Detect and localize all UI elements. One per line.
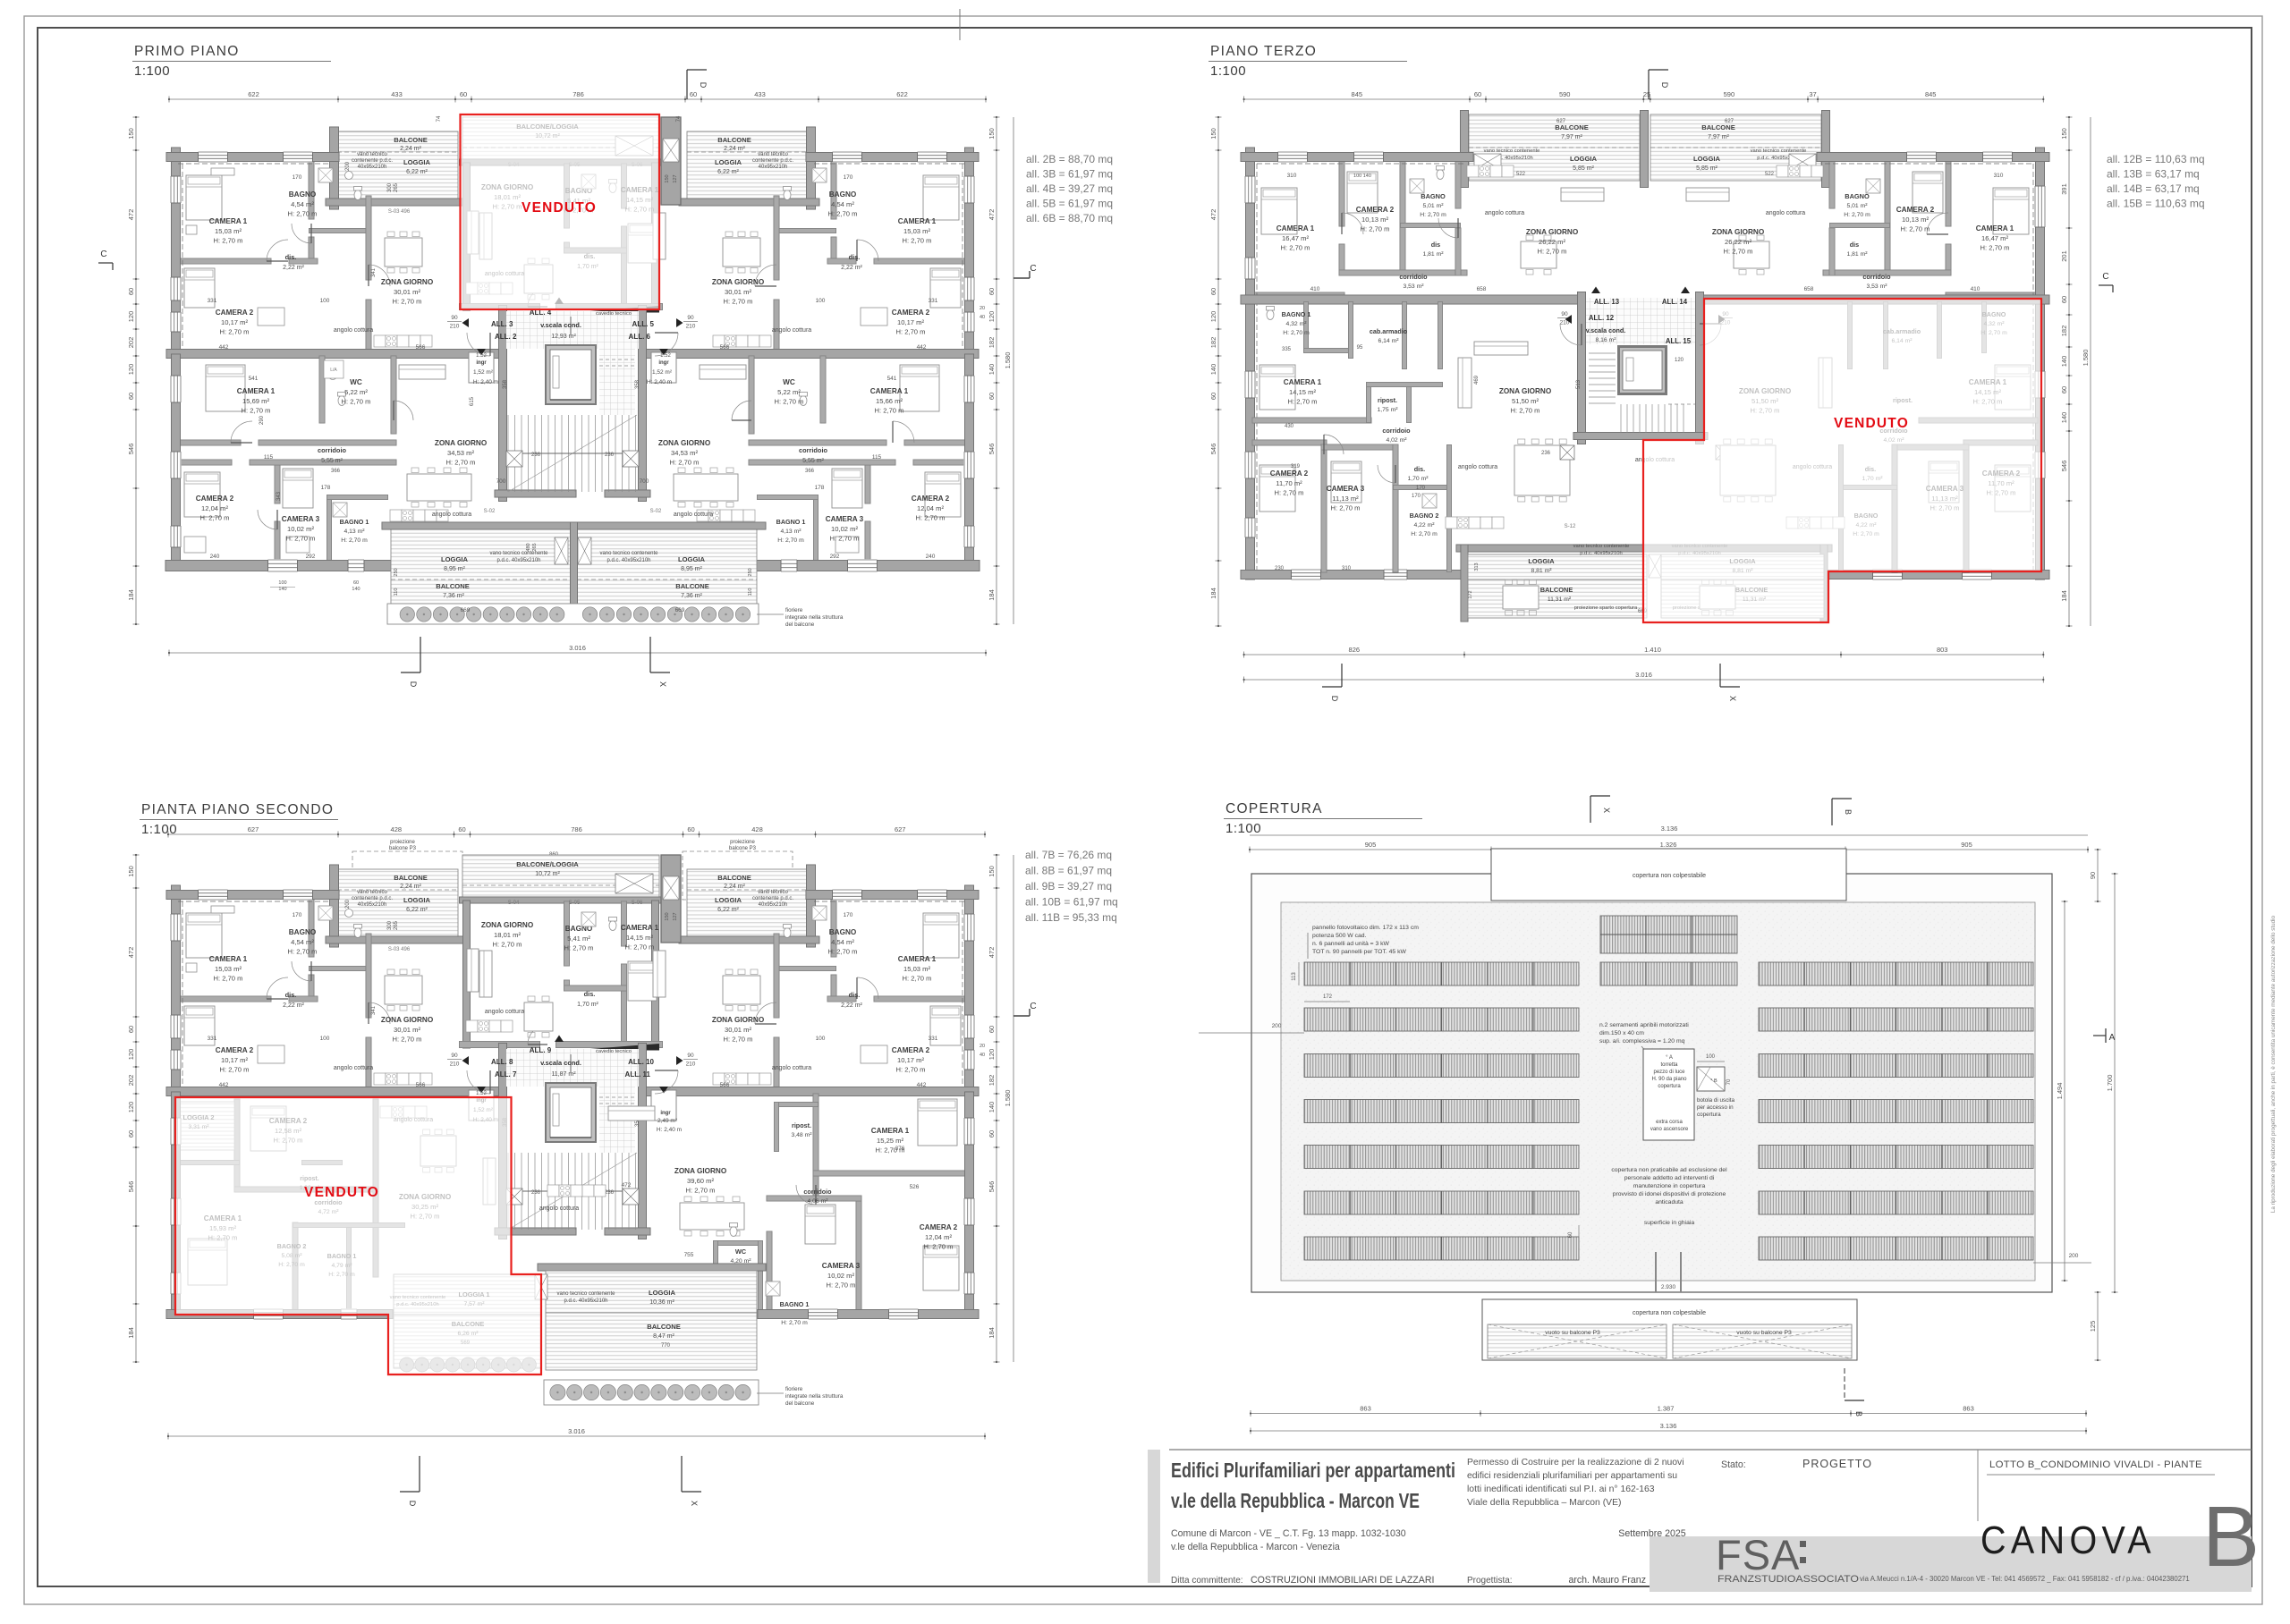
svg-text:100: 100 <box>278 580 286 586</box>
svg-text:250: 250 <box>748 568 753 576</box>
svg-text:CAMERA 2: CAMERA 2 <box>1896 206 1935 214</box>
svg-text:40x95x210h: 40x95x210h <box>358 902 387 908</box>
svg-text:202: 202 <box>127 337 135 349</box>
svg-text:angolo cottura: angolo cottura <box>674 512 713 518</box>
svg-text:H: 2,70 m: H: 2,70 m <box>1844 212 1870 218</box>
svg-text:170: 170 <box>1412 494 1421 499</box>
svg-text:12,04 m²: 12,04 m² <box>917 504 944 512</box>
svg-text:D: D <box>699 82 708 89</box>
svg-text:170: 170 <box>1416 486 1426 491</box>
svg-text:113: 113 <box>1292 972 1297 981</box>
svg-text:H: 2,70 m: H: 2,70 m <box>924 1243 954 1251</box>
svg-text:CAMERA 1: CAMERA 1 <box>870 387 909 395</box>
svg-text:LOGGIA: LOGGIA <box>1570 155 1597 163</box>
svg-text:ingr: ingr <box>658 360 669 366</box>
svg-text:60: 60 <box>127 393 135 400</box>
svg-text:all. 5B = 61,97 mq: all. 5B = 61,97 mq <box>1026 198 1113 210</box>
svg-text:fioriere: fioriere <box>785 607 803 613</box>
svg-text:angolo cottura: angolo cottura <box>772 327 811 334</box>
svg-text:CAMERA 2: CAMERA 2 <box>912 495 950 503</box>
svg-text:CAMERA 1: CAMERA 1 <box>871 1127 910 1135</box>
svg-text:14,15 m²: 14,15 m² <box>626 934 653 942</box>
svg-text:ingr: ingr <box>476 360 487 366</box>
svg-text:622: 622 <box>896 90 908 98</box>
svg-text:10,17 m²: 10,17 m² <box>221 318 248 326</box>
svg-text:150: 150 <box>127 866 135 877</box>
svg-text:4,54 m²: 4,54 m² <box>291 200 314 208</box>
svg-text:51,50 m²: 51,50 m² <box>1512 397 1539 405</box>
svg-text:700: 700 <box>496 478 506 485</box>
svg-text:1:100: 1:100 <box>134 63 170 79</box>
svg-text:S-05: S-05 <box>569 901 581 906</box>
svg-text:all. 10B = 61,97 mq: all. 10B = 61,97 mq <box>1025 896 1118 909</box>
svg-text:240: 240 <box>926 554 936 560</box>
svg-text:60: 60 <box>460 90 467 98</box>
svg-text:CAMERA 2: CAMERA 2 <box>196 495 234 503</box>
svg-text:S-06: S-06 <box>632 901 643 906</box>
svg-text:LOGGIA: LOGGIA <box>649 1289 675 1297</box>
svg-text:472: 472 <box>622 1182 632 1188</box>
svg-text:X: X <box>1602 808 1611 813</box>
svg-text:torretta: torretta <box>1660 1062 1678 1068</box>
svg-text:10,02 m²: 10,02 m² <box>831 525 858 533</box>
svg-text:vano tecnico contenente: vano tecnico contenente <box>1484 148 1540 154</box>
svg-text:vano tecnico contenente: vano tecnico contenente <box>599 551 658 556</box>
svg-text:ZONA GIORNO: ZONA GIORNO <box>658 439 711 447</box>
svg-text:12,04 m²: 12,04 m² <box>925 1233 952 1241</box>
svg-text:90: 90 <box>687 315 694 321</box>
svg-text:30,01 m²: 30,01 m² <box>725 1026 751 1034</box>
svg-text:del balcone: del balcone <box>785 1400 815 1407</box>
svg-text:vano tecnico: vano tecnico <box>357 890 387 895</box>
svg-text:H: 2,70 m: H: 2,70 m <box>288 210 318 218</box>
svg-text:40: 40 <box>980 1053 985 1058</box>
svg-text:per accesso in: per accesso in <box>1697 1104 1734 1111</box>
svg-text:182: 182 <box>988 337 996 349</box>
svg-text:39,60 m²: 39,60 m² <box>687 1177 714 1185</box>
svg-text:H: 2,70 m: H: 2,70 m <box>1281 244 1310 252</box>
svg-text:127: 127 <box>673 912 678 920</box>
svg-text:60: 60 <box>458 825 465 833</box>
svg-text:H: 2,70 m: H: 2,70 m <box>828 210 858 218</box>
svg-text:34,53 m²: 34,53 m² <box>671 449 698 457</box>
svg-text:100: 100 <box>816 1036 826 1042</box>
svg-text:826: 826 <box>1349 646 1361 654</box>
svg-text:CAMERA 1: CAMERA 1 <box>1276 224 1315 233</box>
svg-text:8,47 m²: 8,47 m² <box>653 1333 674 1340</box>
svg-text:11,13 m²: 11,13 m² <box>1332 495 1359 503</box>
svg-text:CAMERA 3: CAMERA 3 <box>1327 485 1365 493</box>
svg-text:150: 150 <box>665 174 670 182</box>
svg-text:WC: WC <box>735 1248 747 1256</box>
svg-text:ALL. 3: ALL. 3 <box>491 320 513 328</box>
svg-text:B: B <box>2202 1489 2260 1585</box>
svg-text:all. 12B = 110,63 mq: all. 12B = 110,63 mq <box>2107 153 2205 165</box>
svg-text:2,22 m²: 2,22 m² <box>283 265 304 271</box>
svg-text:proiezione: proiezione <box>390 840 415 845</box>
svg-text:2.930: 2.930 <box>1661 1284 1676 1290</box>
svg-text:522: 522 <box>1765 172 1775 177</box>
svg-text:20: 20 <box>980 1044 985 1049</box>
svg-text:331: 331 <box>208 1036 217 1042</box>
svg-text:115: 115 <box>264 454 274 461</box>
svg-text:8,81 m²: 8,81 m² <box>1531 568 1552 574</box>
svg-text:S-02: S-02 <box>650 509 662 514</box>
svg-text:all. 7B = 76,26 mq: all. 7B = 76,26 mq <box>1025 849 1112 861</box>
svg-text:8,95 m²: 8,95 m² <box>681 566 702 572</box>
svg-text:26,22 m²: 26,22 m² <box>1725 238 1751 246</box>
svg-text:6,22 m²: 6,22 m² <box>406 907 428 913</box>
svg-text:15,03 m²: 15,03 m² <box>903 965 930 973</box>
svg-text:5,22 m²: 5,22 m² <box>344 388 368 396</box>
svg-text:100: 100 <box>320 1036 330 1042</box>
svg-text:1,70 m²: 1,70 m² <box>1407 476 1429 482</box>
svg-text:10,13 m²: 10,13 m² <box>1361 216 1388 224</box>
svg-text:200: 200 <box>2069 1253 2079 1259</box>
svg-text:angolo cottura: angolo cottura <box>1766 210 1805 216</box>
svg-text:BALCONE: BALCONE <box>436 582 470 590</box>
svg-text:319: 319 <box>1291 464 1301 469</box>
svg-text:3.016: 3.016 <box>568 1427 585 1435</box>
svg-text:H: 2,70 m: H: 2,70 m <box>724 1036 753 1044</box>
svg-text:S-04: S-04 <box>508 901 520 906</box>
svg-text:ZONA GIORNO: ZONA GIORNO <box>1499 387 1552 395</box>
svg-text:90: 90 <box>687 1053 694 1059</box>
svg-text:v.le della Repubblica - Marcon: v.le della Repubblica - Marcon VE <box>1171 1489 1420 1512</box>
svg-text:1.387: 1.387 <box>1658 1405 1675 1413</box>
svg-text:BAGNO: BAGNO <box>289 928 317 936</box>
svg-text:60: 60 <box>988 288 996 295</box>
svg-text:H: 2,70 m: H: 2,70 m <box>1724 248 1753 256</box>
svg-text:H: 2,70 m: H: 2,70 m <box>1411 531 1438 537</box>
svg-text:627: 627 <box>895 825 906 833</box>
svg-text:5,85 m²: 5,85 m² <box>1573 165 1594 172</box>
svg-text:vano tecnico: vano tecnico <box>357 152 387 157</box>
svg-text:H: 2,70 m: H: 2,70 m <box>828 948 858 956</box>
svg-text:11,31 m²: 11,31 m² <box>1548 596 1572 603</box>
svg-text:LOGGIA: LOGGIA <box>1693 155 1720 163</box>
svg-text:236: 236 <box>531 453 541 458</box>
svg-text:LOGGIA: LOGGIA <box>403 896 430 904</box>
svg-text:331: 331 <box>929 298 938 304</box>
svg-text:60: 60 <box>988 1026 996 1033</box>
svg-text:FRANZSTUDIOASSOCIATO: FRANZSTUDIOASSOCIATO <box>1717 1574 1859 1585</box>
svg-text:BALCONE: BALCONE <box>394 136 428 144</box>
svg-text:H: 2,70 m: H: 2,70 m <box>446 459 476 467</box>
svg-text:v.scala cond.: v.scala cond. <box>540 321 581 329</box>
svg-text:1:100: 1:100 <box>1226 821 1261 836</box>
svg-text:angolo cottura: angolo cottura <box>539 1205 579 1212</box>
svg-text:CAMERA 1: CAMERA 1 <box>209 217 248 225</box>
svg-text:210: 210 <box>450 1062 460 1068</box>
svg-text:10,36 m²: 10,36 m² <box>649 1299 674 1306</box>
svg-text:all. 14B = 63,17 mq: all. 14B = 63,17 mq <box>2107 182 2200 195</box>
svg-text:341: 341 <box>371 267 377 277</box>
svg-text:15,25 m²: 15,25 m² <box>877 1137 903 1145</box>
svg-text:ALL. 6: ALL. 6 <box>629 333 651 341</box>
svg-text:extra corsa: extra corsa <box>1656 1120 1683 1125</box>
svg-text:331: 331 <box>208 298 217 304</box>
svg-text:ALL. 11: ALL. 11 <box>625 1070 651 1078</box>
svg-text:863: 863 <box>1360 1405 1371 1413</box>
svg-text:100: 100 <box>320 298 330 304</box>
svg-text:TOT n. 90 pannelli per TOT. 45: TOT n. 90 pannelli per TOT. 45 kW <box>1312 949 1406 955</box>
svg-text:dis.: dis. <box>849 253 861 261</box>
svg-text:H: 2,70 m: H: 2,70 m <box>242 407 271 415</box>
svg-text:34,53 m²: 34,53 m² <box>447 449 474 457</box>
svg-text:CAMERA 1: CAMERA 1 <box>209 955 248 963</box>
svg-text:150: 150 <box>988 866 996 877</box>
svg-text:140: 140 <box>2060 412 2068 424</box>
svg-text:37: 37 <box>1809 90 1816 98</box>
svg-text:250: 250 <box>394 568 399 576</box>
svg-text:627: 627 <box>248 825 259 833</box>
svg-text:74: 74 <box>676 115 682 122</box>
svg-text:18,01 m²: 18,01 m² <box>494 931 521 939</box>
svg-text:410: 410 <box>1971 286 1980 292</box>
svg-text:60: 60 <box>1209 393 1217 400</box>
svg-text:25: 25 <box>1643 90 1650 98</box>
svg-text:ingr: ingr <box>660 1111 671 1116</box>
svg-text:balcone P3: balcone P3 <box>729 846 757 851</box>
svg-text:CAMERA 2: CAMERA 2 <box>892 309 930 317</box>
svg-text:H: 2,70 m: H: 2,70 m <box>875 407 904 415</box>
svg-text:ALL. 12: ALL. 12 <box>1589 314 1615 322</box>
svg-text:90: 90 <box>451 1053 458 1059</box>
svg-text:lotti inedificati identificati: lotti inedificati identificati sul P.I. … <box>1467 1484 1655 1494</box>
svg-text:6,22 m²: 6,22 m² <box>406 169 428 175</box>
svg-text:C: C <box>100 250 106 259</box>
svg-text:140: 140 <box>352 587 360 592</box>
svg-text:265: 265 <box>394 920 399 930</box>
svg-text:7,36 m²: 7,36 m² <box>443 593 464 599</box>
svg-text:590: 590 <box>1559 90 1571 98</box>
svg-text:140: 140 <box>988 364 996 376</box>
svg-text:2,49 m²: 2,49 m² <box>657 1118 678 1124</box>
svg-text:H: 2,70 m: H: 2,70 m <box>393 1036 422 1044</box>
svg-text:H: 2,70 m: H: 2,70 m <box>341 537 368 544</box>
svg-text:770: 770 <box>661 1343 671 1349</box>
svg-text:127: 127 <box>673 174 678 182</box>
svg-text:4,06 m²: 4,06 m² <box>807 1198 828 1205</box>
svg-text:p.d.c. 40x95x210h: p.d.c. 40x95x210h <box>564 1298 607 1304</box>
svg-text:240: 240 <box>210 554 220 560</box>
svg-text:140: 140 <box>278 587 286 592</box>
svg-text:H: 2,70 m: H: 2,70 m <box>1361 225 1390 233</box>
svg-text:PIANO TERZO: PIANO TERZO <box>1210 44 1317 59</box>
svg-text:60: 60 <box>1568 1231 1573 1238</box>
svg-text:4,02 m²: 4,02 m² <box>1386 437 1407 444</box>
svg-text:265: 265 <box>532 543 538 551</box>
svg-text:472: 472 <box>988 947 996 959</box>
svg-text:200: 200 <box>345 161 351 171</box>
svg-text:LOGGIA: LOGGIA <box>678 555 705 563</box>
svg-text:Viale della Repubblica – Marc: Viale della Repubblica – Marcon (VE) <box>1467 1498 1622 1508</box>
svg-text:vano tecnico contenente: vano tecnico contenente <box>1573 544 1630 549</box>
svg-text:vuoto su balcone P3: vuoto su balcone P3 <box>1736 1330 1792 1336</box>
svg-text:dis.: dis. <box>285 253 297 261</box>
svg-text:copertura: copertura <box>1658 1084 1681 1089</box>
svg-text:472: 472 <box>1209 209 1217 221</box>
svg-text:H: 2,70 m: H: 2,70 m <box>1283 330 1310 336</box>
svg-text:172: 172 <box>1468 590 1473 598</box>
svg-text:PRIMO PIANO: PRIMO PIANO <box>134 44 240 59</box>
svg-text:6,14 m²: 6,14 m² <box>1378 338 1399 344</box>
svg-text:335: 335 <box>1282 347 1292 352</box>
svg-text:472: 472 <box>127 209 135 221</box>
svg-text:° A: ° A <box>1666 1055 1673 1061</box>
svg-text:905: 905 <box>1961 841 1972 849</box>
svg-text:BALCONE: BALCONE <box>717 874 751 882</box>
svg-text:3.136: 3.136 <box>1660 1422 1677 1430</box>
svg-text:H: 2,70 m: H: 2,70 m <box>1420 212 1446 218</box>
svg-text:11,70 m²: 11,70 m² <box>1276 479 1302 487</box>
svg-text:CAMERA 1: CAMERA 1 <box>1284 378 1322 386</box>
svg-text:corridoio: corridoio <box>1382 427 1411 435</box>
svg-text:LOTTO B_CONDOMINIO VIVALDI - P: LOTTO B_CONDOMINIO VIVALDI - PIANTE <box>1989 1459 2202 1470</box>
svg-text:BAGNO 2: BAGNO 2 <box>1410 512 1439 520</box>
svg-text:dis: dis <box>1850 241 1859 249</box>
svg-text:178: 178 <box>815 485 825 491</box>
svg-text:all. 11B = 95,33 mq: all. 11B = 95,33 mq <box>1025 911 1117 924</box>
svg-text:100: 100 <box>816 298 826 304</box>
svg-text:vano tecnico contenente: vano tecnico contenente <box>489 551 548 556</box>
svg-text:5,55 m²: 5,55 m² <box>802 458 824 464</box>
svg-text:C: C <box>2102 272 2108 282</box>
svg-text:546: 546 <box>988 1181 996 1193</box>
svg-text:15,66 m²: 15,66 m² <box>876 397 903 405</box>
svg-text:ALL. 14: ALL. 14 <box>1662 298 1688 306</box>
svg-text:BALCONE: BALCONE <box>1555 123 1589 131</box>
svg-text:170: 170 <box>293 912 302 918</box>
svg-text:dis.: dis. <box>1414 465 1425 473</box>
svg-text:12,93 m²: 12,93 m² <box>551 334 576 340</box>
svg-text:115: 115 <box>872 454 882 461</box>
svg-text:LOGGIA: LOGGIA <box>1528 557 1555 565</box>
svg-text:358: 358 <box>635 379 640 389</box>
svg-text:428: 428 <box>391 825 403 833</box>
svg-text:150: 150 <box>2060 128 2068 140</box>
svg-text:angolo cottura: angolo cottura <box>334 327 373 334</box>
svg-text:H: 2,70 m: H: 2,70 m <box>1980 244 2010 252</box>
svg-text:corridoio: corridoio <box>1399 273 1428 281</box>
svg-text:60: 60 <box>687 825 694 833</box>
svg-text:7,36 m²: 7,36 m² <box>681 593 702 599</box>
svg-text:L/A: L/A <box>330 368 337 373</box>
svg-text:ZONA GIORNO: ZONA GIORNO <box>1526 228 1579 236</box>
svg-text:546: 546 <box>988 444 996 455</box>
svg-text:120: 120 <box>127 1049 135 1061</box>
svg-text:40x95x210h: 40x95x210h <box>759 165 788 170</box>
svg-text:CAMERA 1: CAMERA 1 <box>237 387 276 395</box>
svg-text:integrate nella struttura: integrate nella struttura <box>785 1393 844 1400</box>
svg-text:ripost.: ripost. <box>1378 396 1397 404</box>
svg-text:CAMERA 1: CAMERA 1 <box>621 924 659 932</box>
svg-text:1.494: 1.494 <box>2056 1083 2064 1100</box>
svg-text:ALL. 2: ALL. 2 <box>495 333 517 341</box>
svg-text:cavedio tecnico: cavedio tecnico <box>596 1049 632 1054</box>
svg-text:4,54 m²: 4,54 m² <box>831 938 854 946</box>
svg-text:428: 428 <box>751 825 763 833</box>
svg-text:140: 140 <box>2060 356 2068 368</box>
svg-text:15,03 m²: 15,03 m² <box>215 227 242 235</box>
svg-text:6,22 m²: 6,22 m² <box>717 169 739 175</box>
svg-text:26,22 m²: 26,22 m² <box>1539 238 1565 246</box>
svg-text:angolo cottura: angolo cottura <box>1458 464 1497 470</box>
svg-text:fioriere: fioriere <box>785 1386 803 1392</box>
svg-text:H: 2,70 m: H: 2,70 m <box>830 535 860 543</box>
svg-text:184: 184 <box>127 1327 135 1339</box>
svg-text:376: 376 <box>895 1146 905 1152</box>
svg-text:60: 60 <box>988 393 996 400</box>
svg-text:110: 110 <box>748 588 753 596</box>
svg-text:182: 182 <box>2060 326 2068 337</box>
svg-text:LOGGIA: LOGGIA <box>441 555 468 563</box>
svg-text:LOGGIA: LOGGIA <box>715 896 742 904</box>
svg-text:CAMERA 1: CAMERA 1 <box>898 955 937 963</box>
svg-text:CAMERA 2: CAMERA 2 <box>920 1223 958 1231</box>
svg-text:433: 433 <box>391 90 403 98</box>
svg-text:60: 60 <box>1209 288 1217 295</box>
svg-text:265: 265 <box>394 182 399 192</box>
svg-text:2,22 m²: 2,22 m² <box>283 1002 304 1009</box>
svg-text:15,03 m²: 15,03 m² <box>903 227 930 235</box>
svg-text:200: 200 <box>1272 1023 1282 1029</box>
svg-text:182: 182 <box>1209 337 1217 349</box>
svg-text:6,22 m²: 6,22 m² <box>717 907 739 913</box>
svg-text:H: 2,70 m: H: 2,70 m <box>393 298 422 306</box>
svg-text:manutenzione in copertura: manutenzione in copertura <box>1633 1183 1706 1189</box>
svg-text:546: 546 <box>1209 444 1217 455</box>
svg-text:personale addetto ad intervent: personale addetto ad interventi di <box>1624 1175 1715 1181</box>
svg-text:LOGGIA: LOGGIA <box>403 158 430 166</box>
svg-text:H: 2,70 m: H: 2,70 m <box>220 1066 250 1074</box>
svg-text:H: 2,70 m: H: 2,70 m <box>1331 504 1361 512</box>
svg-text:Ditta committente:: Ditta committente: <box>1171 1576 1243 1586</box>
svg-text:16,47 m²: 16,47 m² <box>1981 234 2008 242</box>
svg-text:pezzo di luce: pezzo di luce <box>1653 1070 1685 1075</box>
svg-text:2,24 m²: 2,24 m² <box>400 884 421 890</box>
svg-text:140: 140 <box>988 1102 996 1113</box>
svg-text:300: 300 <box>387 182 393 192</box>
svg-text:2,24 m²: 2,24 m² <box>724 146 745 152</box>
svg-text:BAGNO: BAGNO <box>289 190 317 199</box>
svg-text:n.2 serramenti apribili motori: n.2 serramenti apribili motorizzati <box>1599 1022 1689 1028</box>
svg-text:1,81 m²: 1,81 m² <box>1422 251 1444 258</box>
svg-text:angolo cottura: angolo cottura <box>772 1065 811 1071</box>
svg-text:D: D <box>1660 82 1669 89</box>
svg-text:1,70 m²: 1,70 m² <box>577 1002 598 1008</box>
svg-text:p.d.c. 40x95x210h: p.d.c. 40x95x210h <box>1580 551 1622 556</box>
svg-text:1,52 m²: 1,52 m² <box>652 369 673 376</box>
svg-text:CAMERA 1: CAMERA 1 <box>898 217 937 225</box>
svg-text:H: 2,70 m: H: 2,70 m <box>670 459 700 467</box>
svg-text:310: 310 <box>1342 566 1352 571</box>
svg-text:90: 90 <box>2089 872 2097 879</box>
svg-text:ZONA GIORNO: ZONA GIORNO <box>674 1167 727 1175</box>
svg-text:BALCONE: BALCONE <box>394 874 428 882</box>
svg-text:H: 2,70 m: H: 2,70 m <box>903 975 932 983</box>
svg-text:522: 522 <box>1516 172 1526 177</box>
svg-text:1.52: 1.52 <box>660 353 671 359</box>
svg-text:1:100: 1:100 <box>141 822 177 837</box>
svg-text:110: 110 <box>394 588 399 596</box>
svg-text:803: 803 <box>1937 646 1948 654</box>
svg-text:CAMERA 2: CAMERA 2 <box>216 309 254 317</box>
svg-text:ALL. 8: ALL. 8 <box>491 1058 513 1066</box>
svg-text:120: 120 <box>127 364 135 376</box>
svg-text:H: 2,70 m: H: 2,70 m <box>781 1320 808 1326</box>
